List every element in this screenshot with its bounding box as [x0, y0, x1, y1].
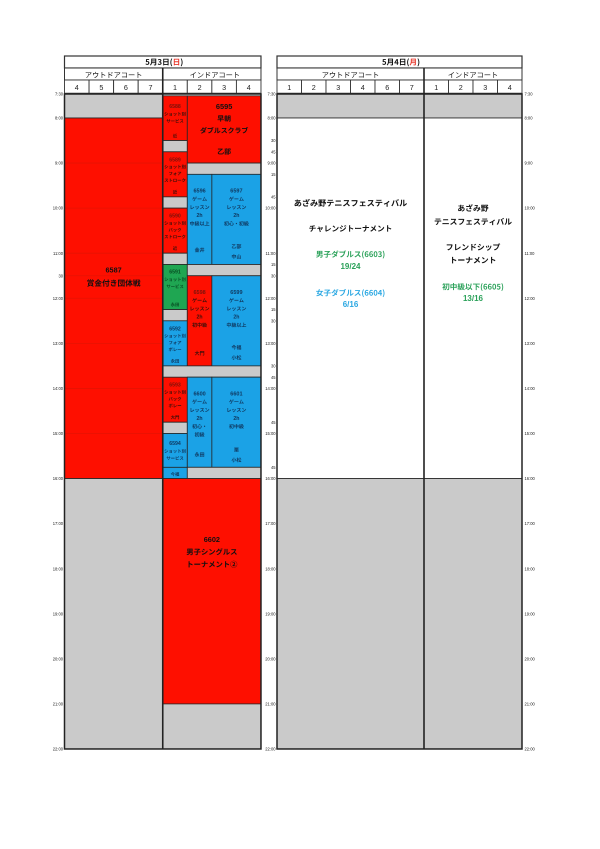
svg-text:6599: 6599 [230, 290, 242, 296]
svg-text:4: 4 [75, 83, 79, 92]
svg-text:5: 5 [99, 83, 103, 92]
svg-text:16:00: 16:00 [53, 476, 64, 481]
svg-text:13:00: 13:00 [525, 341, 536, 346]
svg-text:9:00: 9:00 [525, 161, 534, 166]
svg-text:6596: 6596 [193, 189, 205, 195]
svg-text:8:00: 8:00 [55, 116, 64, 121]
svg-text:6589: 6589 [169, 157, 181, 163]
svg-text:7:30: 7:30 [55, 92, 64, 97]
svg-text:2h: 2h [233, 416, 239, 422]
svg-text:17:00: 17:00 [53, 521, 64, 526]
svg-text:6: 6 [124, 83, 128, 92]
svg-text:19:00: 19:00 [53, 611, 64, 616]
svg-text:6595: 6595 [216, 102, 232, 111]
svg-text:45: 45 [271, 420, 276, 425]
svg-text:22:00: 22:00 [265, 747, 276, 752]
svg-text:6593: 6593 [169, 383, 181, 389]
svg-text:2: 2 [459, 83, 463, 92]
svg-text:15:00: 15:00 [525, 431, 536, 436]
svg-text:9:00: 9:00 [268, 161, 277, 166]
svg-text:45: 45 [271, 194, 276, 199]
svg-text:18:00: 18:00 [265, 566, 276, 571]
svg-text:12:00: 12:00 [53, 296, 64, 301]
svg-text:7:30: 7:30 [525, 92, 534, 97]
svg-text:6598: 6598 [193, 290, 205, 296]
svg-text:20:00: 20:00 [53, 656, 64, 661]
svg-text:45: 45 [271, 149, 276, 154]
svg-text:2h: 2h [233, 315, 239, 321]
svg-text:11:00: 11:00 [525, 251, 536, 256]
svg-text:2h: 2h [197, 213, 203, 219]
svg-text:19/24: 19/24 [340, 262, 361, 271]
svg-text:6: 6 [385, 83, 389, 92]
svg-text:21:00: 21:00 [265, 702, 276, 707]
svg-text:30: 30 [271, 318, 276, 323]
svg-text:8:00: 8:00 [268, 116, 277, 121]
svg-text:13:00: 13:00 [53, 341, 64, 346]
svg-text:18:00: 18:00 [53, 566, 64, 571]
svg-text:6/16: 6/16 [343, 300, 359, 309]
svg-text:6597: 6597 [230, 189, 242, 195]
svg-text:7: 7 [410, 83, 414, 92]
svg-text:1: 1 [173, 83, 177, 92]
svg-text:7:30: 7:30 [268, 92, 277, 97]
svg-text:15: 15 [271, 172, 276, 177]
svg-text:6587: 6587 [106, 266, 122, 275]
svg-text:14:00: 14:00 [265, 386, 276, 391]
svg-text:10:00: 10:00 [265, 206, 276, 211]
svg-text:3: 3 [222, 83, 226, 92]
svg-text:3: 3 [336, 83, 340, 92]
svg-text:17:00: 17:00 [265, 521, 276, 526]
svg-text:45: 45 [271, 375, 276, 380]
svg-text:21:00: 21:00 [53, 702, 64, 707]
svg-text:2h: 2h [197, 416, 203, 422]
svg-text:9:00: 9:00 [55, 161, 64, 166]
svg-text:19:00: 19:00 [265, 611, 276, 616]
svg-text:20:00: 20:00 [525, 656, 536, 661]
svg-text:4: 4 [247, 83, 251, 92]
svg-text:10:00: 10:00 [525, 206, 536, 211]
svg-text:30: 30 [58, 273, 63, 278]
svg-text:6600: 6600 [193, 391, 205, 397]
svg-text:18:00: 18:00 [525, 566, 536, 571]
svg-text:8:00: 8:00 [525, 116, 534, 121]
svg-text:4: 4 [508, 83, 512, 92]
svg-text:30: 30 [271, 363, 276, 368]
svg-text:14:00: 14:00 [53, 386, 64, 391]
svg-text:3: 3 [483, 83, 487, 92]
svg-text:2h: 2h [233, 213, 239, 219]
svg-text:11:00: 11:00 [266, 251, 277, 256]
svg-text:22:00: 22:00 [53, 747, 64, 752]
svg-text:30: 30 [271, 138, 276, 143]
svg-text:14:00: 14:00 [525, 386, 536, 391]
svg-text:1: 1 [287, 83, 291, 92]
svg-text:6590: 6590 [169, 214, 181, 220]
svg-text:15: 15 [271, 307, 276, 312]
svg-text:45: 45 [271, 465, 276, 470]
svg-text:7: 7 [148, 83, 152, 92]
svg-text:2: 2 [198, 83, 202, 92]
svg-text:1: 1 [434, 83, 438, 92]
svg-text:13/16: 13/16 [463, 294, 484, 303]
svg-text:2h: 2h [197, 315, 203, 321]
svg-text:4: 4 [361, 83, 365, 92]
svg-text:16:00: 16:00 [265, 476, 276, 481]
svg-text:11:00: 11:00 [53, 251, 64, 256]
svg-text:6602: 6602 [204, 535, 220, 544]
svg-text:20:00: 20:00 [265, 656, 276, 661]
svg-text:22:00: 22:00 [525, 747, 536, 752]
svg-text:6588: 6588 [169, 104, 181, 110]
svg-text:12:00: 12:00 [525, 296, 536, 301]
svg-text:2: 2 [312, 83, 316, 92]
svg-text:10:00: 10:00 [53, 206, 64, 211]
svg-text:15:00: 15:00 [265, 431, 276, 436]
svg-text:6591: 6591 [169, 270, 181, 276]
svg-text:19:00: 19:00 [525, 611, 536, 616]
svg-text:15: 15 [271, 262, 276, 267]
svg-text:17:00: 17:00 [525, 521, 536, 526]
svg-text:30: 30 [271, 273, 276, 278]
svg-text:6592: 6592 [169, 326, 181, 332]
svg-text:16:00: 16:00 [525, 476, 536, 481]
svg-text:21:00: 21:00 [525, 702, 536, 707]
svg-text:13:00: 13:00 [265, 341, 276, 346]
svg-text:6601: 6601 [230, 391, 242, 397]
svg-text:12:00: 12:00 [265, 296, 276, 301]
svg-text:6594: 6594 [169, 441, 181, 447]
svg-text:15:00: 15:00 [53, 431, 64, 436]
